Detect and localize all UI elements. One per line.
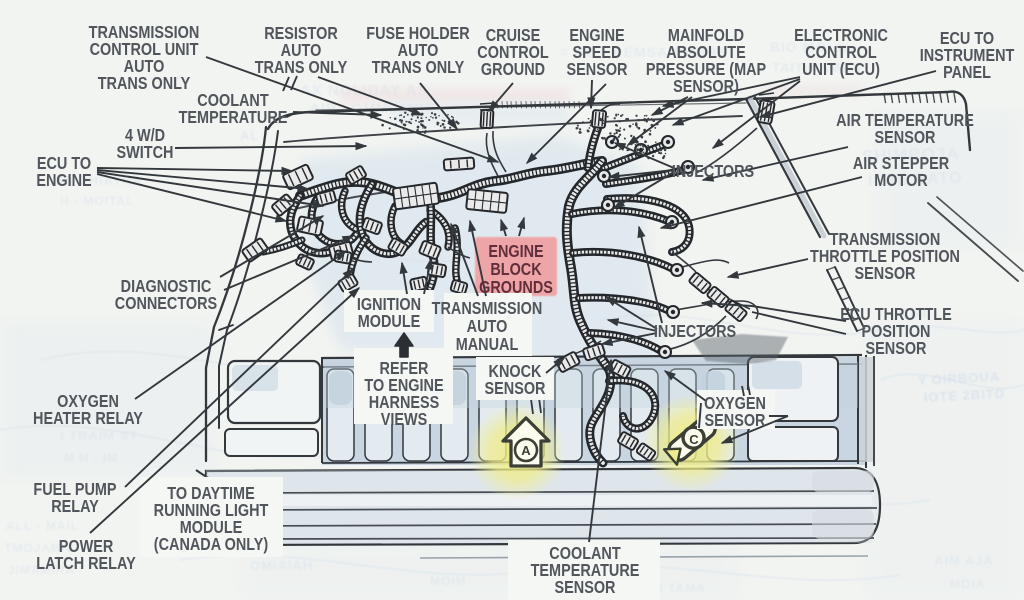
svg-text:C: C xyxy=(689,432,699,447)
svg-text:H - MOITAL: H - MOITAL xyxy=(60,194,134,208)
svg-text:A: A xyxy=(521,443,531,458)
